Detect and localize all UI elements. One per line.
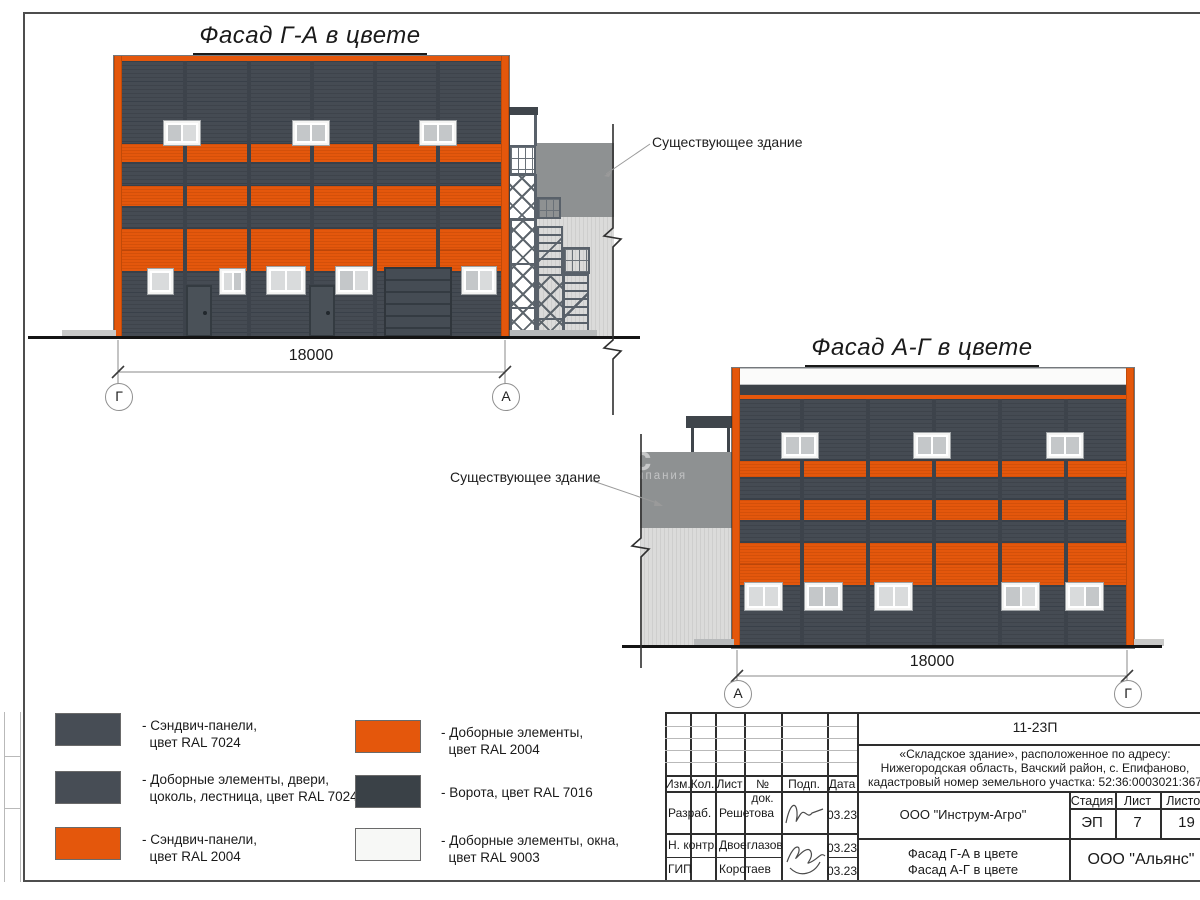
facade2-title: Фасад А-Г в цвете: [772, 334, 1072, 367]
corner-trim: [732, 368, 740, 648]
date-label: 03.23: [827, 864, 857, 878]
fascia: [740, 385, 1126, 395]
description-line: Нижегородская область, Вачский район, с.…: [857, 761, 1200, 775]
description-line: кадастровый номер земельного участка: 52…: [857, 775, 1200, 789]
col-header-kol: Кол.: [690, 777, 715, 791]
legend-swatch: [55, 713, 121, 746]
stair-flight: [537, 226, 563, 274]
legend-label: - Доборные элементы, окна, цвет RAL 9003: [441, 832, 619, 866]
window-pane: [424, 125, 437, 141]
signature: [782, 795, 826, 832]
entry-door: [186, 285, 212, 337]
stair-flight: [563, 274, 589, 337]
stair-truss: [536, 274, 565, 337]
window-pane: [895, 587, 909, 606]
entry-door: [309, 285, 335, 337]
titleblock-line: [665, 833, 857, 835]
stair-truss: [509, 219, 537, 337]
window: [1046, 432, 1084, 459]
window-pane: [340, 271, 353, 290]
date-label: 03.23: [827, 808, 857, 822]
window: [419, 120, 457, 146]
window-pane: [749, 587, 763, 606]
margin-line: [4, 808, 21, 809]
window-pane: [1086, 587, 1100, 606]
stage-header: Стадия: [1069, 794, 1115, 808]
corner-trim: [1126, 368, 1134, 648]
name-label: Двоеглазов: [719, 838, 783, 852]
project-description: «Складское здание», расположенное по адр…: [857, 747, 1200, 789]
stair-landing: [563, 247, 590, 274]
legend-label: - Сэндвич-панели, цвет RAL 2004: [142, 831, 257, 865]
window-pane: [809, 587, 823, 606]
window: [781, 432, 819, 459]
titleblock-line: [857, 838, 1200, 840]
col-header-podp: Подп.: [781, 777, 827, 791]
window-pane: [480, 271, 492, 290]
existing-building-lower: [640, 528, 734, 648]
titleblock-line: [665, 857, 781, 858]
firm-name: ООО "Альянс": [1069, 851, 1200, 869]
legend-swatch: [355, 828, 421, 861]
window-pane: [825, 587, 839, 606]
col-header-doc: № док.: [744, 777, 781, 805]
sheets-header: Листов: [1160, 794, 1200, 808]
legend-label: - Сэндвич-панели, цвет RAL 7024: [142, 717, 257, 751]
titleblock-line: [665, 762, 857, 763]
existing-post: [727, 428, 730, 453]
window: [804, 582, 843, 611]
drawing-name-line: Фасад А-Г в цвете: [857, 862, 1069, 878]
window: [335, 266, 373, 295]
window: [292, 120, 330, 146]
parapet: [732, 368, 1134, 385]
window-pane: [1051, 437, 1064, 454]
panel-joint: [866, 399, 870, 648]
axis-bubble: А: [724, 680, 752, 708]
window-pane: [933, 437, 946, 454]
existing-building-label: Существующее здание: [450, 469, 601, 485]
window-pane: [234, 273, 242, 290]
name-label: Коротаев: [719, 862, 771, 876]
window-pane: [287, 271, 301, 290]
axis-bubble: А: [492, 383, 520, 411]
existing-building-label: Существующее здание: [652, 134, 803, 150]
role-label: Разраб.: [668, 806, 711, 820]
drawing-sheet: Фасад Г-А в цвете: [0, 0, 1200, 900]
col-header-list: Лист: [715, 777, 744, 791]
description-line: «Складское здание», расположенное по адр…: [857, 747, 1200, 761]
titleblock-line: [665, 726, 857, 727]
window: [461, 266, 497, 295]
legend-swatch: [355, 720, 421, 753]
window: [913, 432, 951, 459]
window-pane: [355, 271, 368, 290]
margin-line: [20, 712, 21, 882]
drawing-name-line: Фасад Г-А в цвете: [857, 846, 1069, 862]
window-pane: [786, 437, 799, 454]
stair-truss: [507, 174, 537, 220]
titleblock-line: [857, 744, 1200, 746]
panel-joint: [373, 61, 377, 337]
stage-value: ЭП: [1069, 814, 1115, 831]
window-pane: [1070, 587, 1084, 606]
window: [1065, 582, 1104, 611]
legend-label: - Ворота, цвет RAL 7016: [441, 784, 593, 801]
legend-swatch: [55, 771, 121, 804]
ground-line: [28, 336, 640, 339]
window-pane: [152, 273, 169, 290]
titleblock-line: [827, 857, 857, 858]
window: [744, 582, 783, 611]
titleblock-line: [665, 738, 857, 739]
window-pane: [1066, 437, 1079, 454]
drawing-name: Фасад Г-А в цвете Фасад А-Г в цвете: [857, 846, 1069, 878]
role-label: Н. контр.: [668, 838, 718, 852]
signature: [780, 836, 827, 881]
titleblock-line: [1069, 808, 1200, 810]
existing-parapet-cap: [686, 416, 736, 428]
corner-trim: [501, 56, 509, 337]
facade1-building: [114, 56, 509, 337]
ground-line: [622, 645, 1162, 648]
window: [163, 120, 201, 146]
watermark-text: компания: [620, 470, 687, 482]
margin-line: [4, 756, 21, 757]
stair-railing: [509, 145, 536, 175]
sectional-gate: [384, 267, 452, 337]
col-header-izm: Изм.: [665, 777, 690, 791]
facade2-building: [732, 368, 1134, 648]
facade1-title: Фасад Г-А в цвете: [160, 22, 460, 55]
window-pane: [918, 437, 931, 454]
window: [219, 268, 246, 295]
window-pane: [466, 271, 478, 290]
sheets-value: 19: [1160, 814, 1200, 831]
panel-joint: [247, 61, 251, 337]
stair-landing: [537, 197, 561, 219]
window: [1001, 582, 1040, 611]
window-pane: [183, 125, 196, 141]
window-pane: [312, 125, 325, 141]
date-label: 03.23: [827, 841, 857, 855]
margin-line: [4, 712, 5, 882]
role-label: ГИП: [668, 862, 692, 876]
corner-trim: [114, 56, 122, 337]
window: [266, 266, 306, 295]
existing-building-upper: [640, 452, 734, 528]
window: [874, 582, 913, 611]
stair-roof-cap: [506, 107, 538, 115]
dimension-label: 18000: [872, 653, 992, 671]
legend-label: - Доборные элементы, цвет RAL 2004: [441, 724, 583, 758]
window-pane: [168, 125, 181, 141]
window: [147, 268, 174, 295]
sheet-header: Лист: [1115, 794, 1160, 808]
axis-bubble: Г: [105, 383, 133, 411]
window-pane: [271, 271, 285, 290]
window-pane: [1022, 587, 1036, 606]
col-header-data: Дата: [827, 777, 857, 791]
existing-post: [691, 428, 694, 453]
legend-swatch: [55, 827, 121, 860]
doc-number: 11-23П: [857, 719, 1200, 735]
legend-label: - Доборные элементы, двери, цоколь, лест…: [142, 771, 358, 805]
stair-post: [534, 115, 537, 146]
designer-company: ООО "Инструм-Агро": [857, 807, 1069, 822]
window-pane: [439, 125, 452, 141]
titleblock-line: [665, 750, 857, 751]
name-label: Решетова: [719, 806, 774, 820]
axis-bubble: Г: [1114, 680, 1142, 708]
sheet-value: 7: [1115, 814, 1160, 831]
dimension-label: 18000: [251, 347, 371, 365]
window-pane: [297, 125, 310, 141]
window-pane: [224, 273, 232, 290]
window-pane: [765, 587, 779, 606]
legend-swatch: [355, 775, 421, 808]
window-pane: [879, 587, 893, 606]
window-pane: [801, 437, 814, 454]
window-pane: [1006, 587, 1020, 606]
